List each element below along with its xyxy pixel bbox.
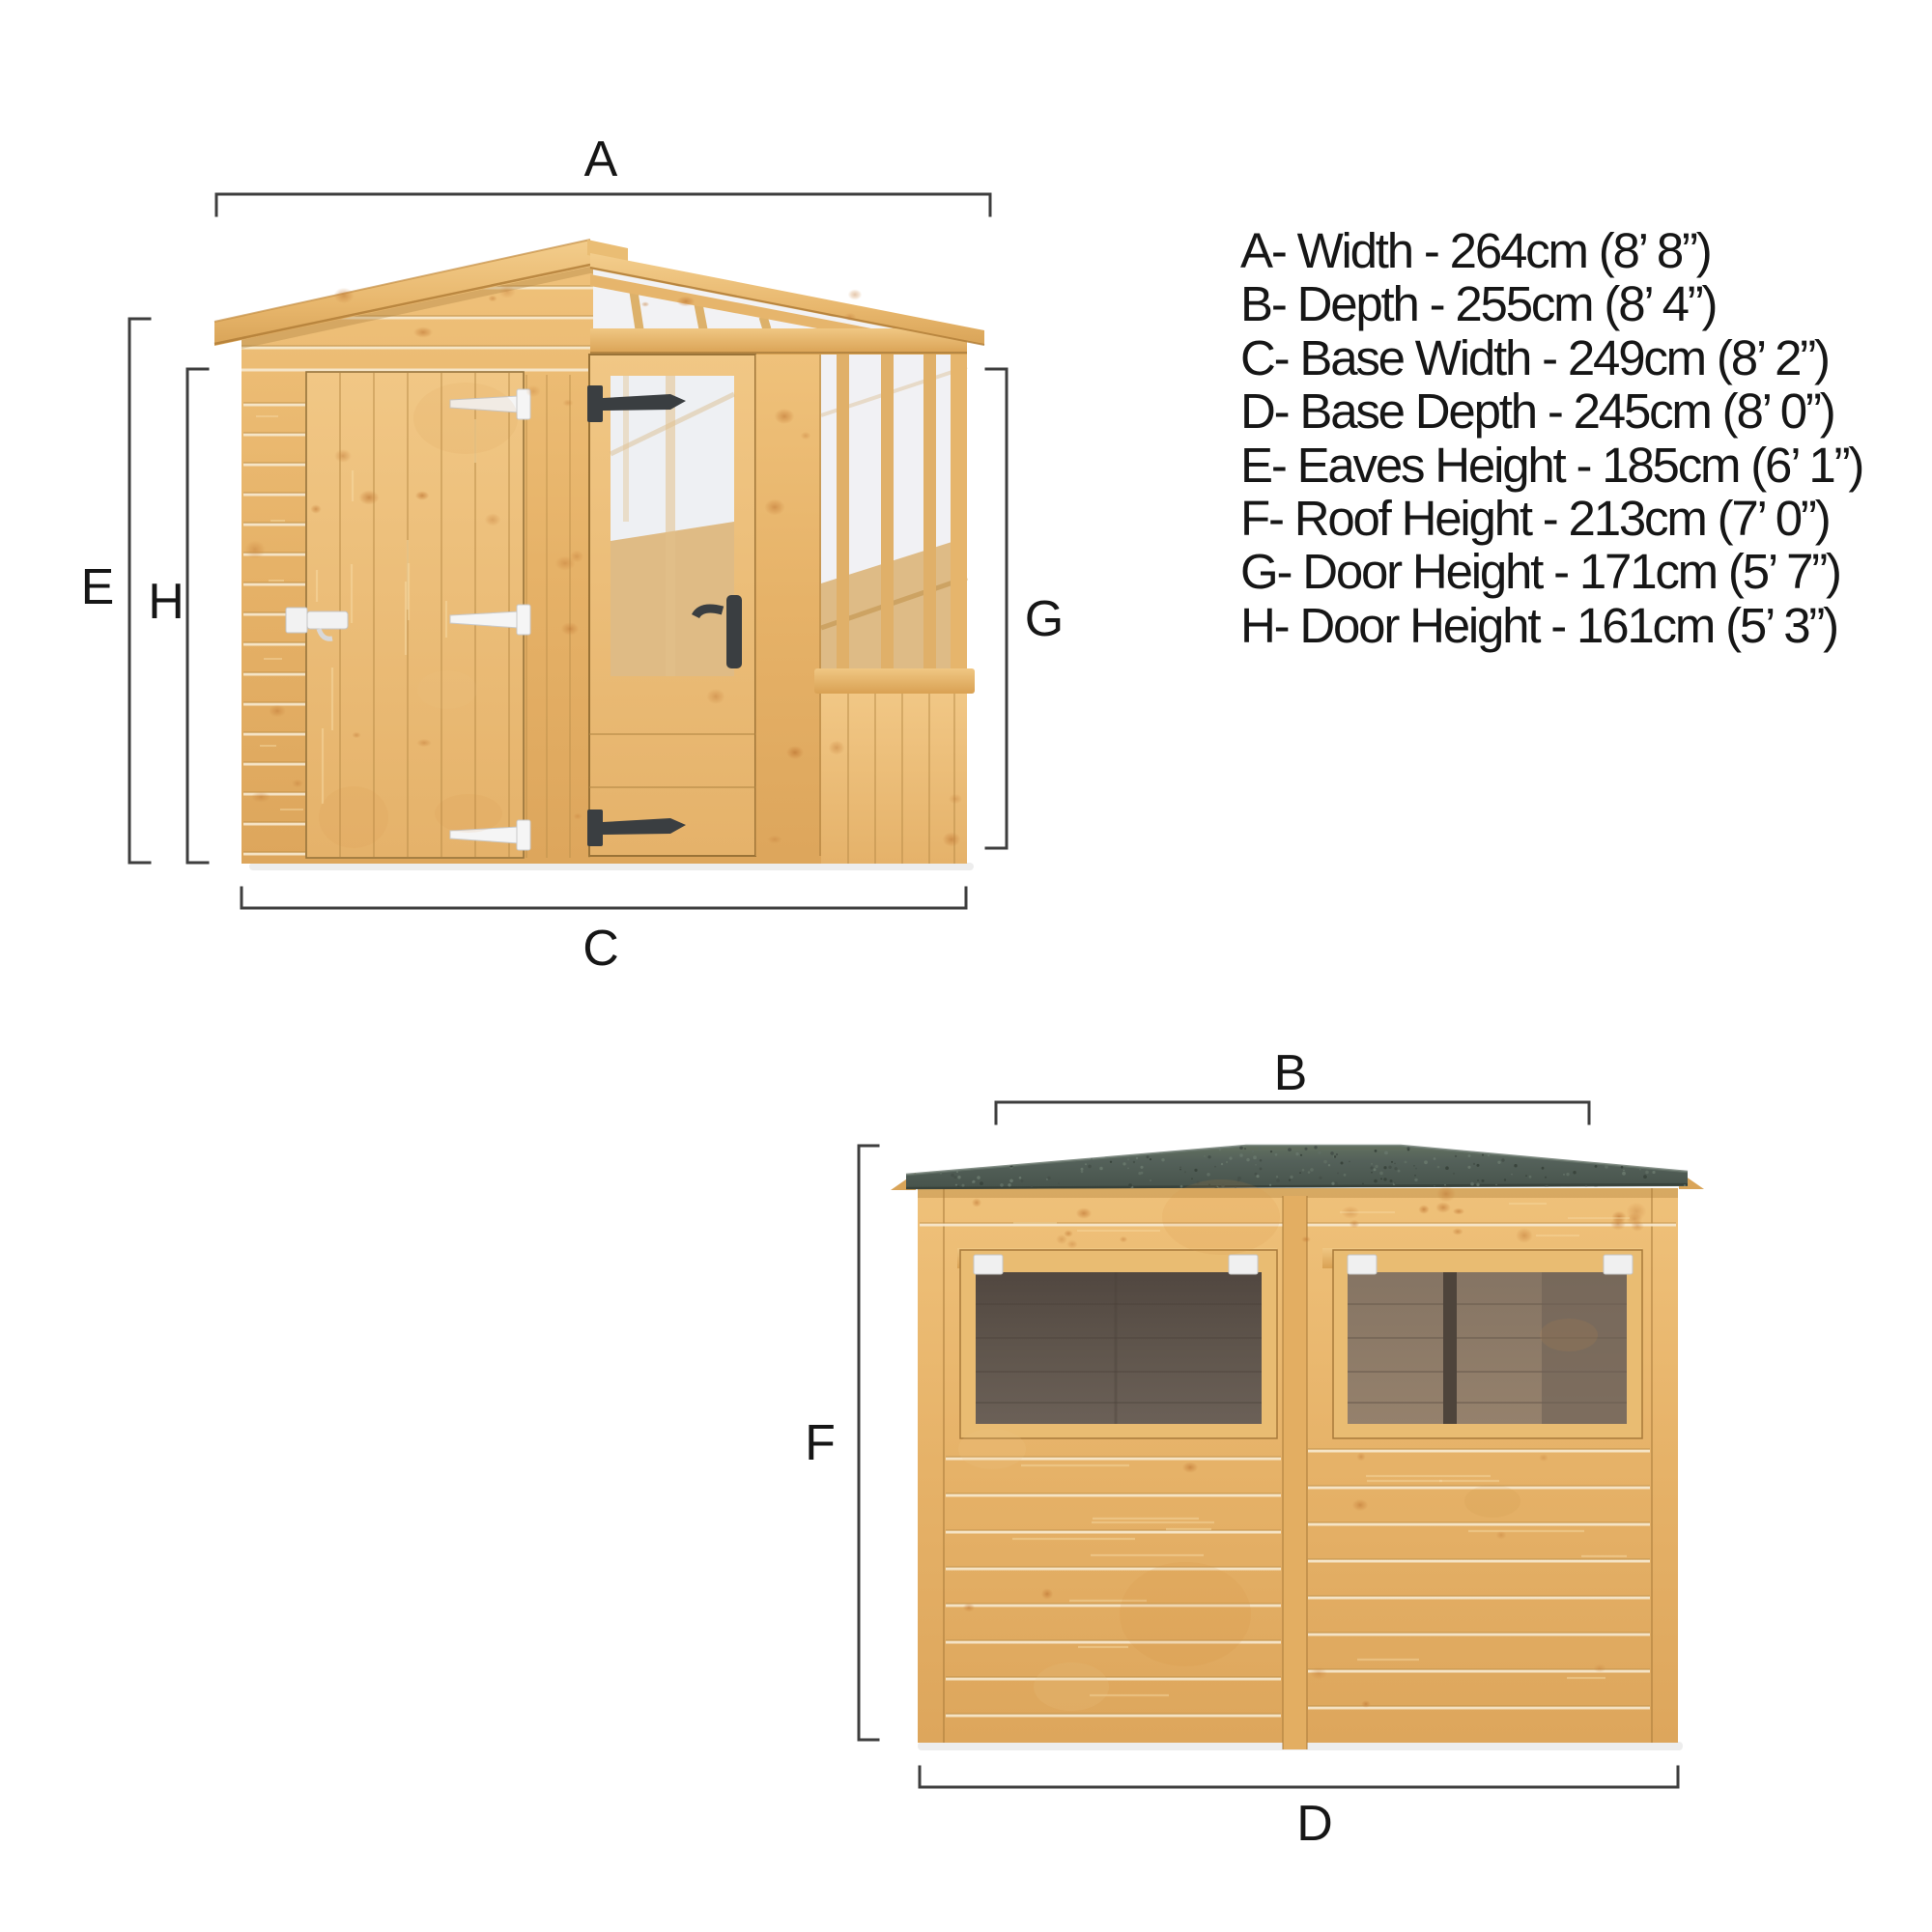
svg-text:D- Base Depth - 245cm (8’ 0”): D- Base Depth - 245cm (8’ 0”): [1240, 384, 1834, 439]
svg-text:E: E: [81, 559, 115, 615]
svg-text:G: G: [1025, 591, 1064, 647]
svg-text:B: B: [1274, 1045, 1308, 1101]
svg-text:C- Base Width - 249cm (8’ 2”): C- Base Width - 249cm (8’ 2”): [1240, 330, 1829, 385]
svg-text:A: A: [584, 131, 618, 187]
svg-text:C: C: [582, 921, 619, 977]
svg-text:A- Width - 264cm (8’ 8”): A- Width - 264cm (8’ 8”): [1240, 223, 1711, 278]
svg-text:G- Door Height - 171cm (5’ 7”): G- Door Height - 171cm (5’ 7”): [1240, 544, 1840, 599]
svg-text:H: H: [148, 574, 185, 630]
svg-text:F: F: [805, 1415, 836, 1471]
svg-text:F- Roof Height - 213cm (7’ 0”): F- Roof Height - 213cm (7’ 0”): [1240, 491, 1829, 546]
svg-text:H- Door Height - 161cm (5’ 3”): H- Door Height - 161cm (5’ 3”): [1240, 598, 1837, 653]
svg-text:E- Eaves Height - 185cm (6’ 1”: E- Eaves Height - 185cm (6’ 1”): [1240, 438, 1862, 493]
svg-text:B- Depth - 255cm (8’ 4”): B- Depth - 255cm (8’ 4”): [1240, 276, 1716, 331]
svg-text:D: D: [1296, 1796, 1333, 1852]
